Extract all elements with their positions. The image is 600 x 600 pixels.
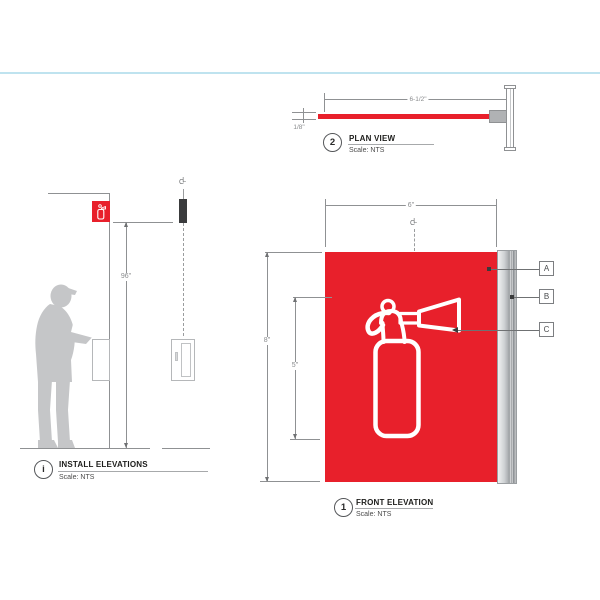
front-detail-underline bbox=[355, 508, 433, 509]
plan-dim-ext-left bbox=[324, 93, 325, 112]
floor-line-right bbox=[162, 448, 210, 449]
front-dim8-ext-bottom bbox=[260, 481, 320, 482]
front-width-dim: 6" bbox=[406, 202, 416, 210]
front-dim-ext-left bbox=[325, 199, 326, 247]
plan-detail-scale: Scale: NTS bbox=[349, 147, 384, 155]
front-centerline-dash bbox=[414, 229, 415, 251]
front-dim8-ext-top bbox=[265, 252, 322, 253]
callout-b-box: B bbox=[539, 289, 554, 304]
install-dim-tick-top bbox=[113, 222, 173, 223]
install-height-dim: 96" bbox=[119, 273, 133, 281]
plan-sign-panel-edge bbox=[318, 114, 493, 119]
floor-line-left bbox=[20, 448, 150, 449]
front-icon-height-dim: 5" bbox=[290, 362, 300, 370]
front-dim8-line bbox=[267, 252, 268, 482]
front-dim5-ext-top bbox=[293, 297, 332, 298]
front-dim-ext-right bbox=[496, 199, 497, 247]
install-centerline-symbol: CL bbox=[179, 177, 188, 186]
callout-c-leader bbox=[458, 330, 539, 331]
install-dim-line bbox=[126, 222, 127, 448]
front-dim8-arrow-bottom bbox=[265, 477, 269, 482]
mounting-rail bbox=[497, 250, 517, 484]
cabinet-front-door bbox=[181, 343, 191, 377]
drawing-sheet: 6-1/2" 1/8" 2 PLAN VIEW Scale: NTS bbox=[0, 0, 600, 600]
plan-rail-cap-top bbox=[504, 85, 516, 89]
front-detail-title: FRONT ELEVATION bbox=[356, 498, 433, 507]
plan-rail-cap-bottom bbox=[504, 147, 516, 151]
front-dim5-arrow-top bbox=[293, 297, 297, 302]
ceiling-line bbox=[48, 193, 110, 194]
install-centerline-top bbox=[183, 189, 184, 199]
install-detail-underline bbox=[58, 471, 208, 472]
callout-b-leader bbox=[512, 297, 539, 298]
front-height-dim: 8" bbox=[262, 337, 272, 345]
front-dim8-arrow-top bbox=[265, 252, 269, 257]
install-centerline-dash bbox=[183, 223, 184, 336]
plan-width-dim: 6-1/2" bbox=[407, 96, 428, 104]
front-dim5-ext-bottom bbox=[290, 439, 320, 440]
callout-b-dot bbox=[510, 295, 514, 299]
plan-rail-plate-inner-line bbox=[510, 89, 511, 147]
install-sign-edge-bar bbox=[179, 199, 187, 223]
fire-extinguisher-icon bbox=[358, 294, 468, 444]
plan-detail-title: PLAN VIEW bbox=[349, 134, 395, 143]
install-detail-number: i bbox=[34, 460, 53, 479]
front-dim5-arrow-bottom bbox=[293, 434, 297, 439]
callout-c-box: C bbox=[539, 322, 554, 337]
front-centerline-symbol: CL bbox=[410, 218, 419, 227]
callout-a-box: A bbox=[539, 261, 554, 276]
install-detail-scale: Scale: NTS bbox=[59, 474, 94, 482]
callout-a-leader bbox=[489, 269, 539, 270]
mini-extinguisher-icon bbox=[92, 201, 110, 222]
plan-detail-underline bbox=[348, 144, 434, 145]
install-detail-title: INSTALL ELEVATIONS bbox=[59, 460, 148, 469]
plan-thickness-line-top bbox=[292, 112, 316, 113]
plan-thickness-dim: 1/8" bbox=[291, 124, 306, 132]
install-dim-arrow-top bbox=[124, 222, 128, 227]
plan-thickness-tick bbox=[303, 108, 304, 123]
front-detail-scale: Scale: NTS bbox=[356, 511, 391, 519]
cabinet-front-handle bbox=[175, 352, 178, 361]
header-rule bbox=[0, 72, 600, 74]
callout-c-arrow bbox=[452, 327, 458, 333]
callout-a-dot bbox=[487, 267, 491, 271]
plan-thickness-line-bottom bbox=[292, 119, 316, 120]
cabinet-side-view bbox=[92, 339, 110, 381]
plan-detail-number: 2 bbox=[323, 133, 342, 152]
front-detail-number: 1 bbox=[334, 498, 353, 517]
install-sign-flag bbox=[92, 201, 110, 222]
